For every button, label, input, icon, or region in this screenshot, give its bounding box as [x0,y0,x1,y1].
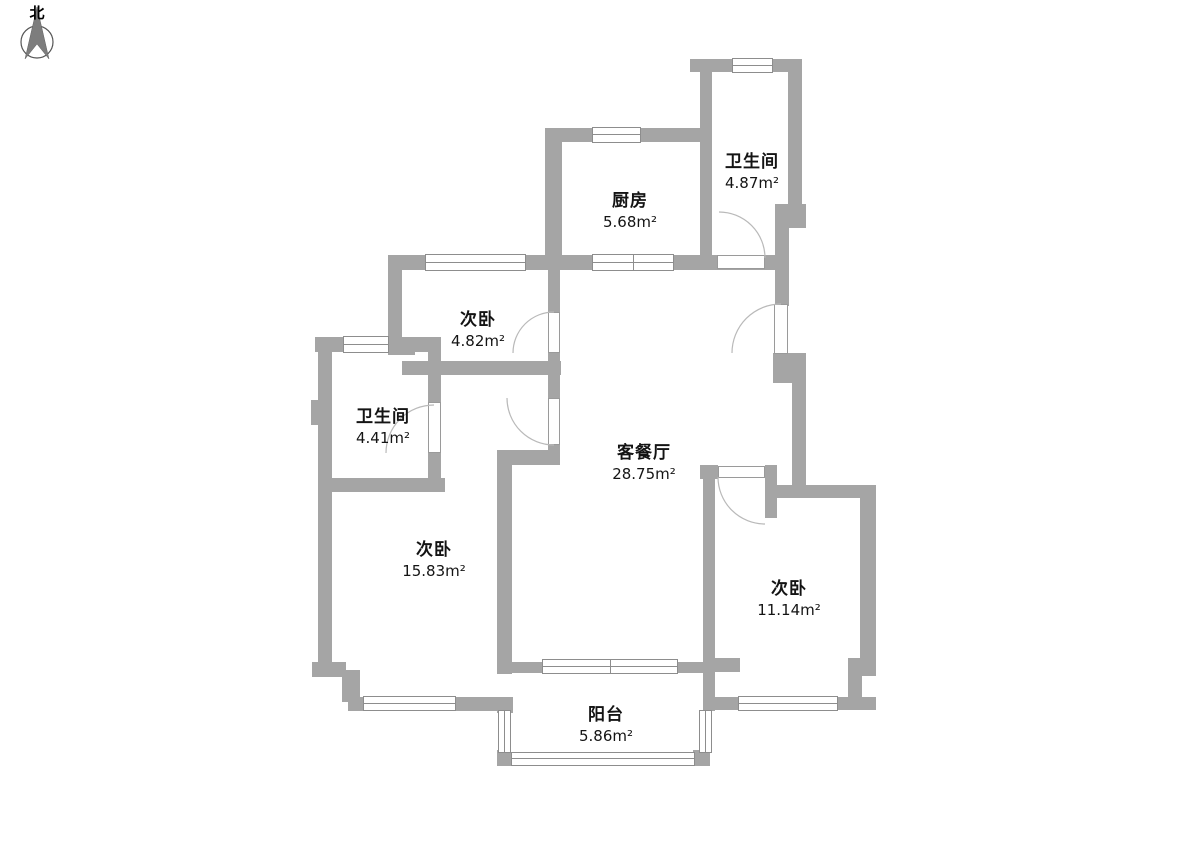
door-entry [774,304,788,354]
door-bedsmall [548,312,560,353]
window-bathleft-top [343,336,389,353]
room-name: 阳台 [536,700,676,725]
window-kitchen-top [592,127,641,143]
room-name: 客餐厅 [574,438,714,463]
wall-doorwall-seg2 [548,353,560,398]
door-bath-top [717,255,765,269]
door-bedright [718,466,765,478]
wall-balcony-top-left [512,662,544,673]
window-balcony-bottom [511,752,695,766]
wall-bedright-left [703,465,715,711]
north-label: 北 [20,2,54,23]
wall-right-step1 [775,204,806,228]
room-area: 5.86m² [536,727,676,745]
room-area: 5.68m² [560,213,700,231]
wall-right-lower [792,380,806,488]
wall-bedleft-step1 [312,662,346,677]
wall-bedright-step [848,658,876,676]
window-bedsmall-top [425,254,526,271]
window-balcony-left [498,710,511,753]
room-name: 卫生间 [682,147,822,172]
label-kitchen: 厨房 5.68m² [560,186,700,231]
room-name: 卫生间 [313,402,453,427]
wall-bedright-stub [703,658,740,672]
room-area: 11.14m² [719,601,859,619]
wall-bedleft-jut [497,450,560,465]
door-arc-bedright [718,477,765,524]
room-area: 4.87m² [682,174,822,192]
room-area: 4.82m² [408,332,548,350]
label-living-dining: 客餐厅 28.75m² [574,438,714,483]
label-bathroom-top: 卫生间 4.87m² [682,147,822,192]
window-kitchen-pass [592,254,674,271]
wall-bathleft-bottom [318,478,445,492]
wall-bedright-right [860,485,876,660]
compass: 北 [6,2,70,70]
door-arc-bath-top [719,212,765,258]
label-balcony: 阳台 5.86m² [536,700,676,745]
door-bedleft [548,398,560,445]
room-name: 次卧 [364,535,504,560]
window-bedleft-bottom [363,696,456,711]
room-area: 28.75m² [574,465,714,483]
wall-bedsmall-bottom [402,361,561,375]
wall-right-step2 [773,353,806,383]
balcony-sliding-door [542,659,678,674]
door-arc-bedleft [507,398,554,445]
label-bedroom-small: 次卧 4.82m² [408,305,548,350]
room-name: 次卧 [719,574,859,599]
window-balcony-right [699,710,712,753]
label-bedroom-left: 次卧 15.83m² [364,535,504,580]
label-bedroom-right: 次卧 11.14m² [719,574,859,619]
window-bath-top [732,58,773,73]
room-area: 4.41m² [313,429,453,447]
window-bedright-bottom [738,696,838,711]
wall-doorwall-seg1 [548,268,560,312]
room-name: 厨房 [560,186,700,211]
room-area: 15.83m² [364,562,504,580]
room-name: 次卧 [408,305,548,330]
label-bathroom-left: 卫生间 4.41m² [313,402,453,447]
floor-plan: 北 [0,0,1200,860]
wall-bathleft-left [318,337,332,665]
